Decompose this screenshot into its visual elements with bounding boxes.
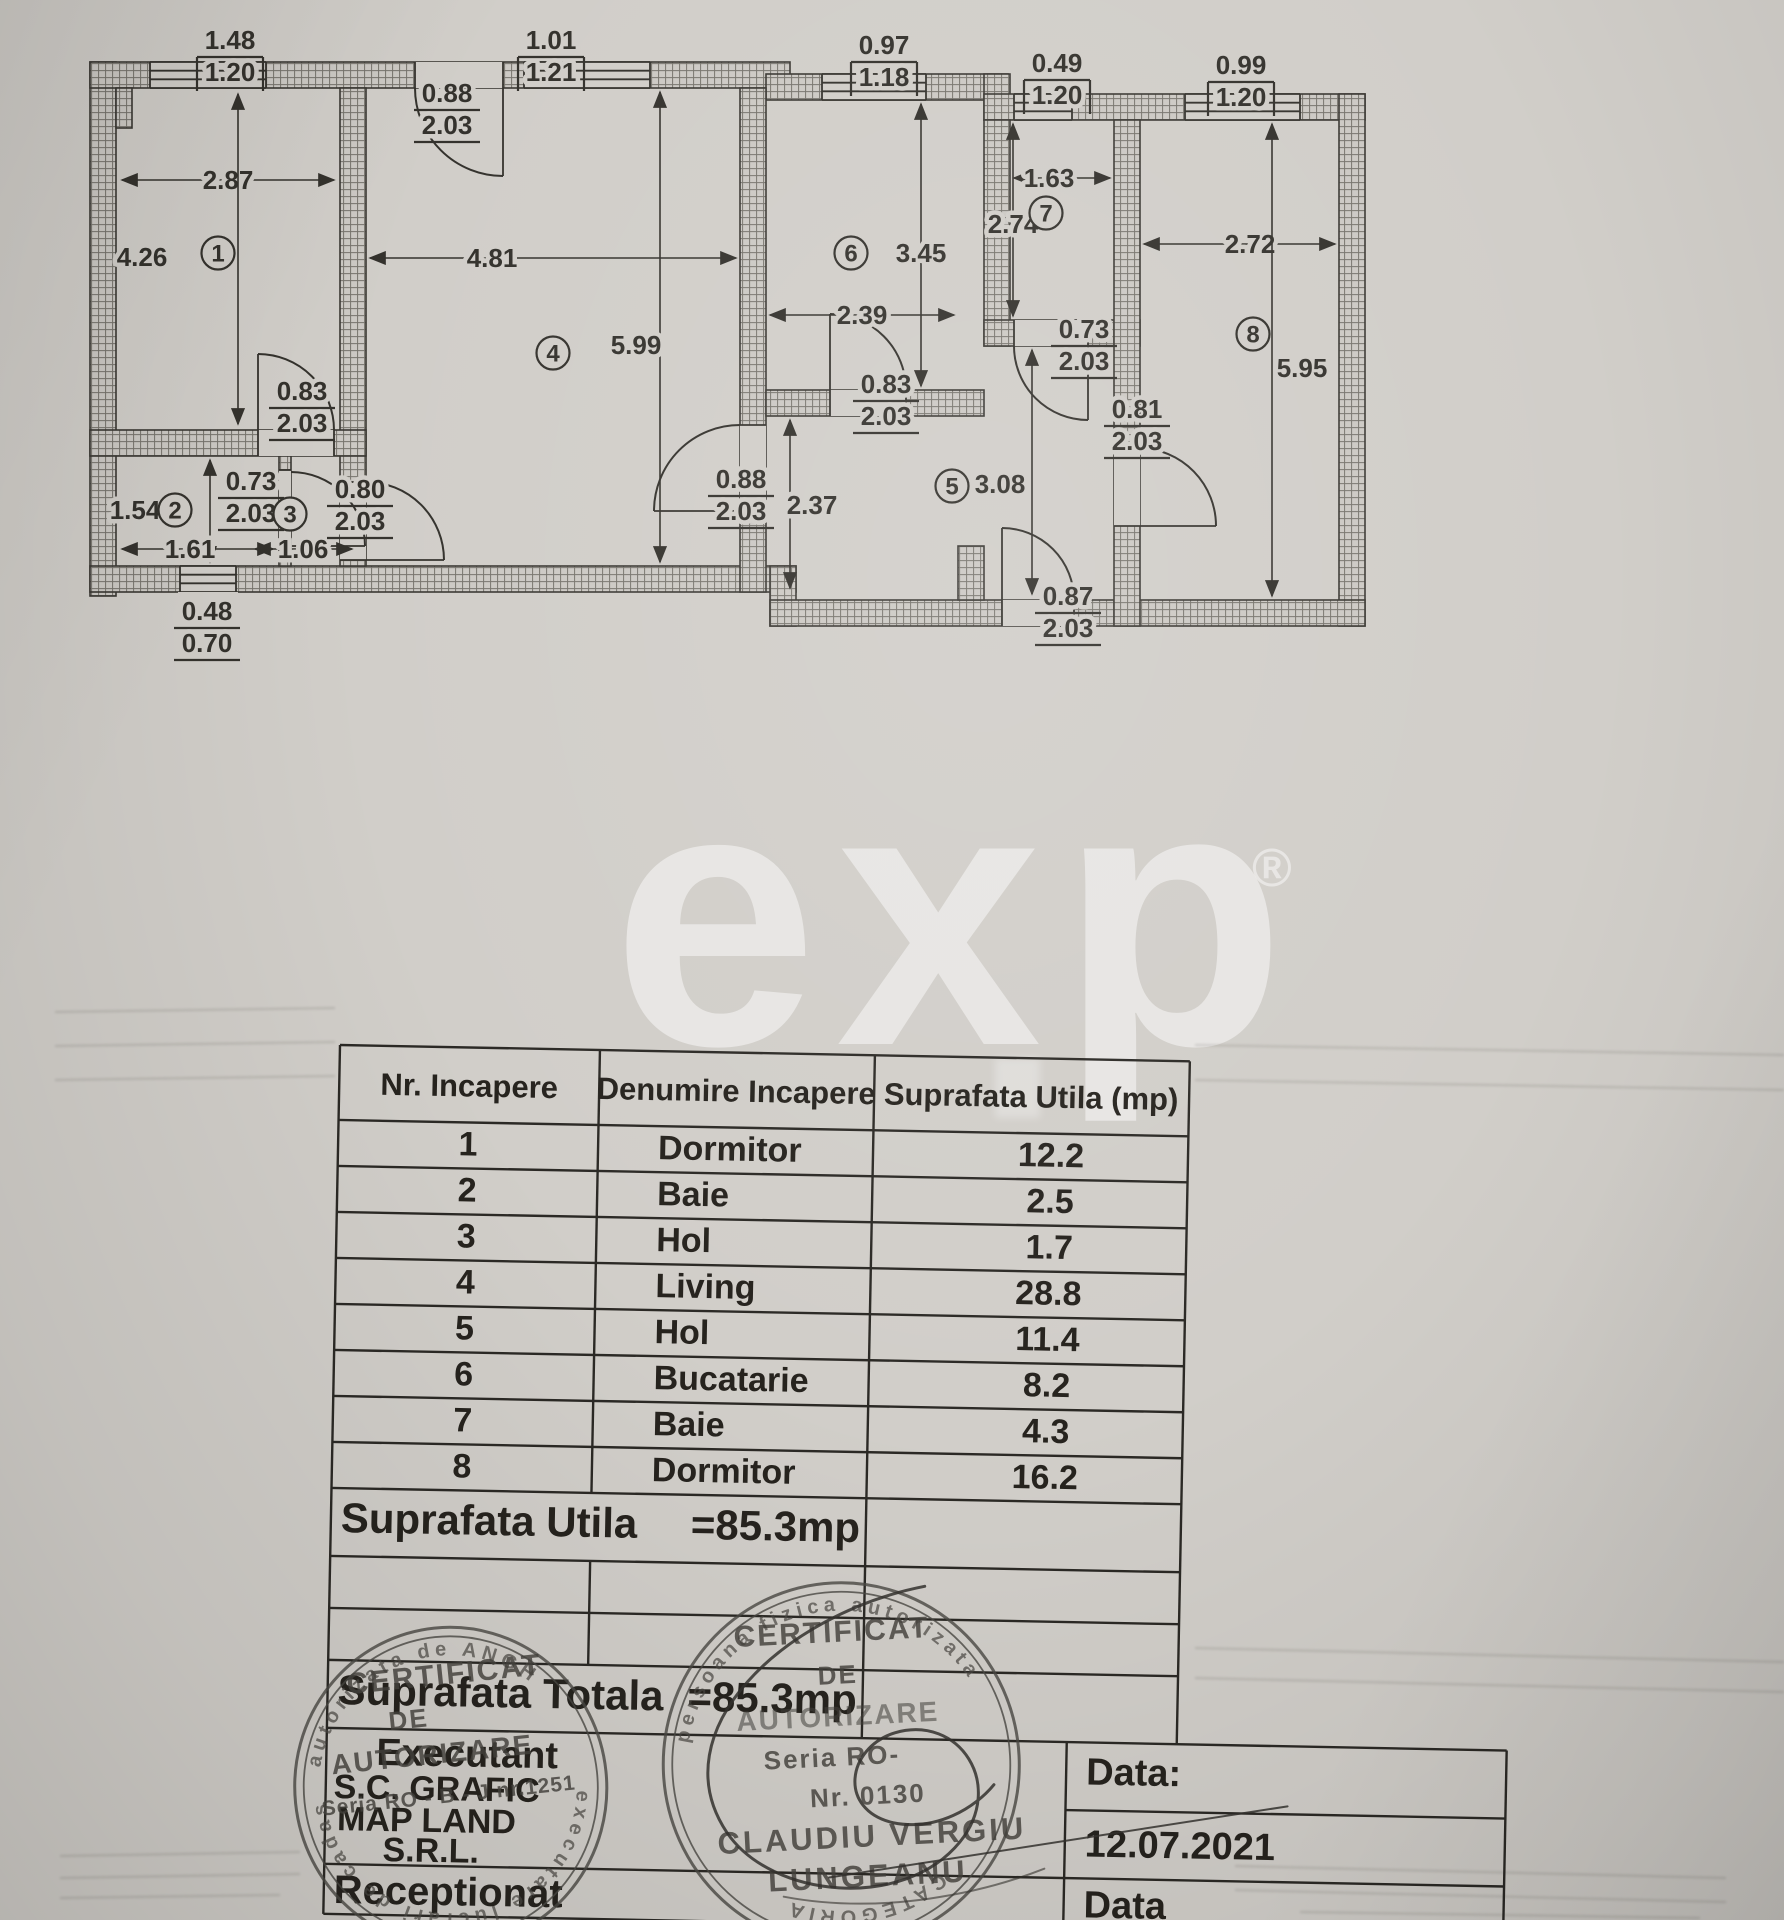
size-height: 2.03	[716, 496, 767, 526]
room-number-value: 2	[168, 498, 181, 525]
dimension-value: 2.37	[787, 490, 838, 520]
size-height: 1.20	[1032, 80, 1083, 110]
room-number: 8	[1237, 318, 1270, 351]
size-height: 2.03	[1059, 346, 1110, 376]
door-window-size-label: 1.011.21	[518, 25, 584, 91]
floor-plan: 2.874.261.541.611.064.815.992.393.452.74…	[90, 25, 1365, 660]
col-header-nr: Nr. Incapere	[380, 1067, 558, 1105]
size-width: 0.73	[226, 466, 277, 496]
dimension: 3.45	[896, 104, 947, 386]
dimension-value: 1.54	[110, 495, 161, 525]
door-window-size-label: 1.481.20	[197, 25, 263, 91]
door-window-size-label: 0.882.03	[414, 78, 480, 142]
door-window-size-label: 0.832.03	[853, 369, 919, 433]
door-window-size-label: 0.802.03	[327, 474, 393, 538]
size-width: 0.99	[1216, 50, 1267, 80]
dimension-value: 3.08	[975, 469, 1026, 499]
size-height: 2.03	[1043, 613, 1094, 643]
cell-nr: 5	[455, 1309, 475, 1347]
dimension-value: 3.45	[896, 238, 947, 268]
room-number-value: 4	[546, 341, 560, 368]
stamp-line: DE	[387, 1702, 430, 1736]
company-line-3: S.R.L.	[382, 1831, 479, 1871]
cell-area: 11.4	[1015, 1320, 1080, 1359]
dimension: 2.87	[122, 165, 334, 195]
door-swing-arc	[1140, 448, 1216, 526]
dimension: 5.99	[611, 92, 662, 562]
table-line-vertical	[1503, 1751, 1507, 1920]
dimension-value: 4.81	[467, 243, 518, 273]
door-window-size-label: 0.991.20	[1208, 50, 1274, 116]
room-number-value: 3	[283, 502, 296, 529]
cell-area: 12.2	[1018, 1136, 1085, 1175]
size-width: 0.83	[861, 369, 912, 399]
room-number-value: 5	[945, 474, 958, 501]
size-width: 0.97	[859, 30, 910, 60]
size-width: 0.80	[335, 474, 386, 504]
size-width: 0.87	[1043, 581, 1094, 611]
cell-nr: 7	[453, 1401, 473, 1439]
data-value: 12.07.2021	[1084, 1823, 1275, 1869]
size-width: 1.01	[526, 25, 577, 55]
cell-area: 8.2	[1023, 1366, 1071, 1405]
room-number: 6	[835, 237, 868, 270]
size-height: 1.21	[526, 57, 577, 87]
data-label-2: Data	[1083, 1884, 1167, 1920]
door-window-size-label: 0.732.03	[1051, 314, 1117, 378]
dimension-value: 2.72	[1225, 229, 1276, 259]
dimension: 2.39	[770, 300, 954, 330]
cell-name: Hol	[656, 1221, 712, 1260]
dimension-value: 1.61	[165, 534, 216, 564]
table-line-vertical	[1063, 1742, 1067, 1920]
size-width: 0.49	[1032, 48, 1083, 78]
data-label: Data:	[1086, 1751, 1182, 1795]
stamp-line: Seria RO-	[763, 1739, 901, 1776]
size-height: 1.20	[1216, 82, 1267, 112]
size-width: 0.73	[1059, 314, 1110, 344]
cell-name: Bucatarie	[653, 1359, 809, 1400]
room-number: 1	[202, 237, 235, 270]
watermark-text: exp	[612, 710, 1304, 1125]
door-window-size-label: 0.882.03	[708, 464, 774, 528]
room-number: 3	[274, 498, 307, 531]
size-width: 1.48	[205, 25, 256, 55]
suprafata-utila-label: Suprafata Utila	[340, 1494, 638, 1547]
door-window-size-label: 0.832.03	[269, 376, 335, 440]
size-height: 2.03	[226, 498, 277, 528]
window	[180, 566, 236, 592]
cell-nr: 6	[454, 1355, 474, 1393]
dimension: 2.37	[787, 420, 838, 588]
size-height: 2.03	[335, 506, 386, 536]
cell-nr: 3	[457, 1217, 477, 1255]
size-height: 2.03	[1112, 426, 1163, 456]
cell-name: Baie	[657, 1175, 730, 1214]
door-window-size-label: 0.971.18	[851, 30, 917, 96]
table-line-vertical	[591, 1050, 600, 1493]
room-number: 2	[159, 494, 192, 527]
room-number: 4	[537, 337, 570, 370]
door	[1114, 448, 1216, 526]
cell-name: Baie	[652, 1405, 725, 1444]
door-window-size-label: 0.491.20	[1024, 48, 1090, 114]
table-line-horizontal	[330, 1556, 1180, 1572]
scanned-document-page: 2.874.261.541.611.064.815.992.393.452.74…	[0, 0, 1784, 1920]
cell-nr: 4	[456, 1263, 476, 1301]
size-width: 0.48	[182, 596, 233, 626]
door-window-size-label: 0.872.03	[1035, 581, 1101, 645]
dimension: 1.61	[122, 534, 273, 564]
size-height: 0.70	[182, 628, 233, 658]
table-line-horizontal	[1065, 1810, 1505, 1818]
room-number-value: 6	[844, 241, 857, 268]
col-header-name: Denumire Incapere	[596, 1071, 876, 1111]
stamp-line: DE	[817, 1659, 859, 1691]
room-number-value: 8	[1246, 322, 1259, 349]
room-number-value: 7	[1039, 201, 1052, 228]
dimension: 1.63	[1014, 163, 1110, 193]
document-canvas: 2.874.261.541.611.064.815.992.393.452.74…	[0, 0, 1784, 1920]
size-width: 0.88	[716, 464, 767, 494]
size-height: 2.03	[861, 401, 912, 431]
size-width: 0.88	[422, 78, 473, 108]
dimension-value: 5.95	[1277, 353, 1328, 383]
room-number-value: 1	[211, 241, 224, 268]
cell-name: Hol	[654, 1313, 710, 1352]
door-window-size-label: 0.480.70	[174, 596, 240, 660]
dimension: 5.95	[1272, 124, 1327, 596]
cell-name: Living	[655, 1267, 756, 1307]
dimension-value: 5.99	[611, 330, 662, 360]
stamp-line: Nr. 0130	[809, 1778, 926, 1814]
door-window-size-label: 0.812.03	[1104, 394, 1170, 458]
col-header-area: Suprafata Utila (mp)	[884, 1076, 1179, 1117]
cell-nr: 8	[452, 1447, 472, 1485]
room-number: 7	[1030, 197, 1063, 230]
dimension-value: 1.06	[278, 534, 329, 564]
cell-nr: 1	[458, 1125, 478, 1163]
size-width: 0.83	[277, 376, 328, 406]
table-line-vertical	[1177, 1061, 1190, 1744]
size-width: 0.81	[1112, 394, 1163, 424]
door	[1002, 528, 1074, 626]
dimension: 2.72	[1144, 229, 1335, 259]
registered-mark-icon: ®	[1252, 838, 1292, 898]
size-height: 2.03	[277, 408, 328, 438]
cell-name: Dormitor	[658, 1129, 802, 1170]
cell-area: 2.5	[1026, 1182, 1074, 1221]
suprafata-utila-value: =85.3mp	[690, 1501, 860, 1551]
dimension: 4.81	[370, 243, 736, 273]
cell-name: Dormitor	[652, 1451, 796, 1492]
dimension-value: 2.87	[203, 165, 254, 195]
dimension-value: 1.63	[1024, 163, 1075, 193]
cell-nr: 2	[457, 1171, 477, 1209]
cell-area: 1.7	[1025, 1228, 1073, 1267]
size-height: 1.20	[205, 57, 256, 87]
cell-area: 16.2	[1011, 1458, 1078, 1497]
size-height: 1.18	[859, 62, 910, 92]
exp-watermark: exp ®	[612, 710, 1304, 1125]
cell-area: 4.3	[1022, 1412, 1070, 1451]
room-number: 5	[936, 470, 969, 503]
dimension-value: 4.26	[117, 242, 168, 272]
dimension-value: 2.39	[837, 300, 888, 330]
cell-area: 28.8	[1015, 1274, 1082, 1313]
size-height: 2.03	[422, 110, 473, 140]
